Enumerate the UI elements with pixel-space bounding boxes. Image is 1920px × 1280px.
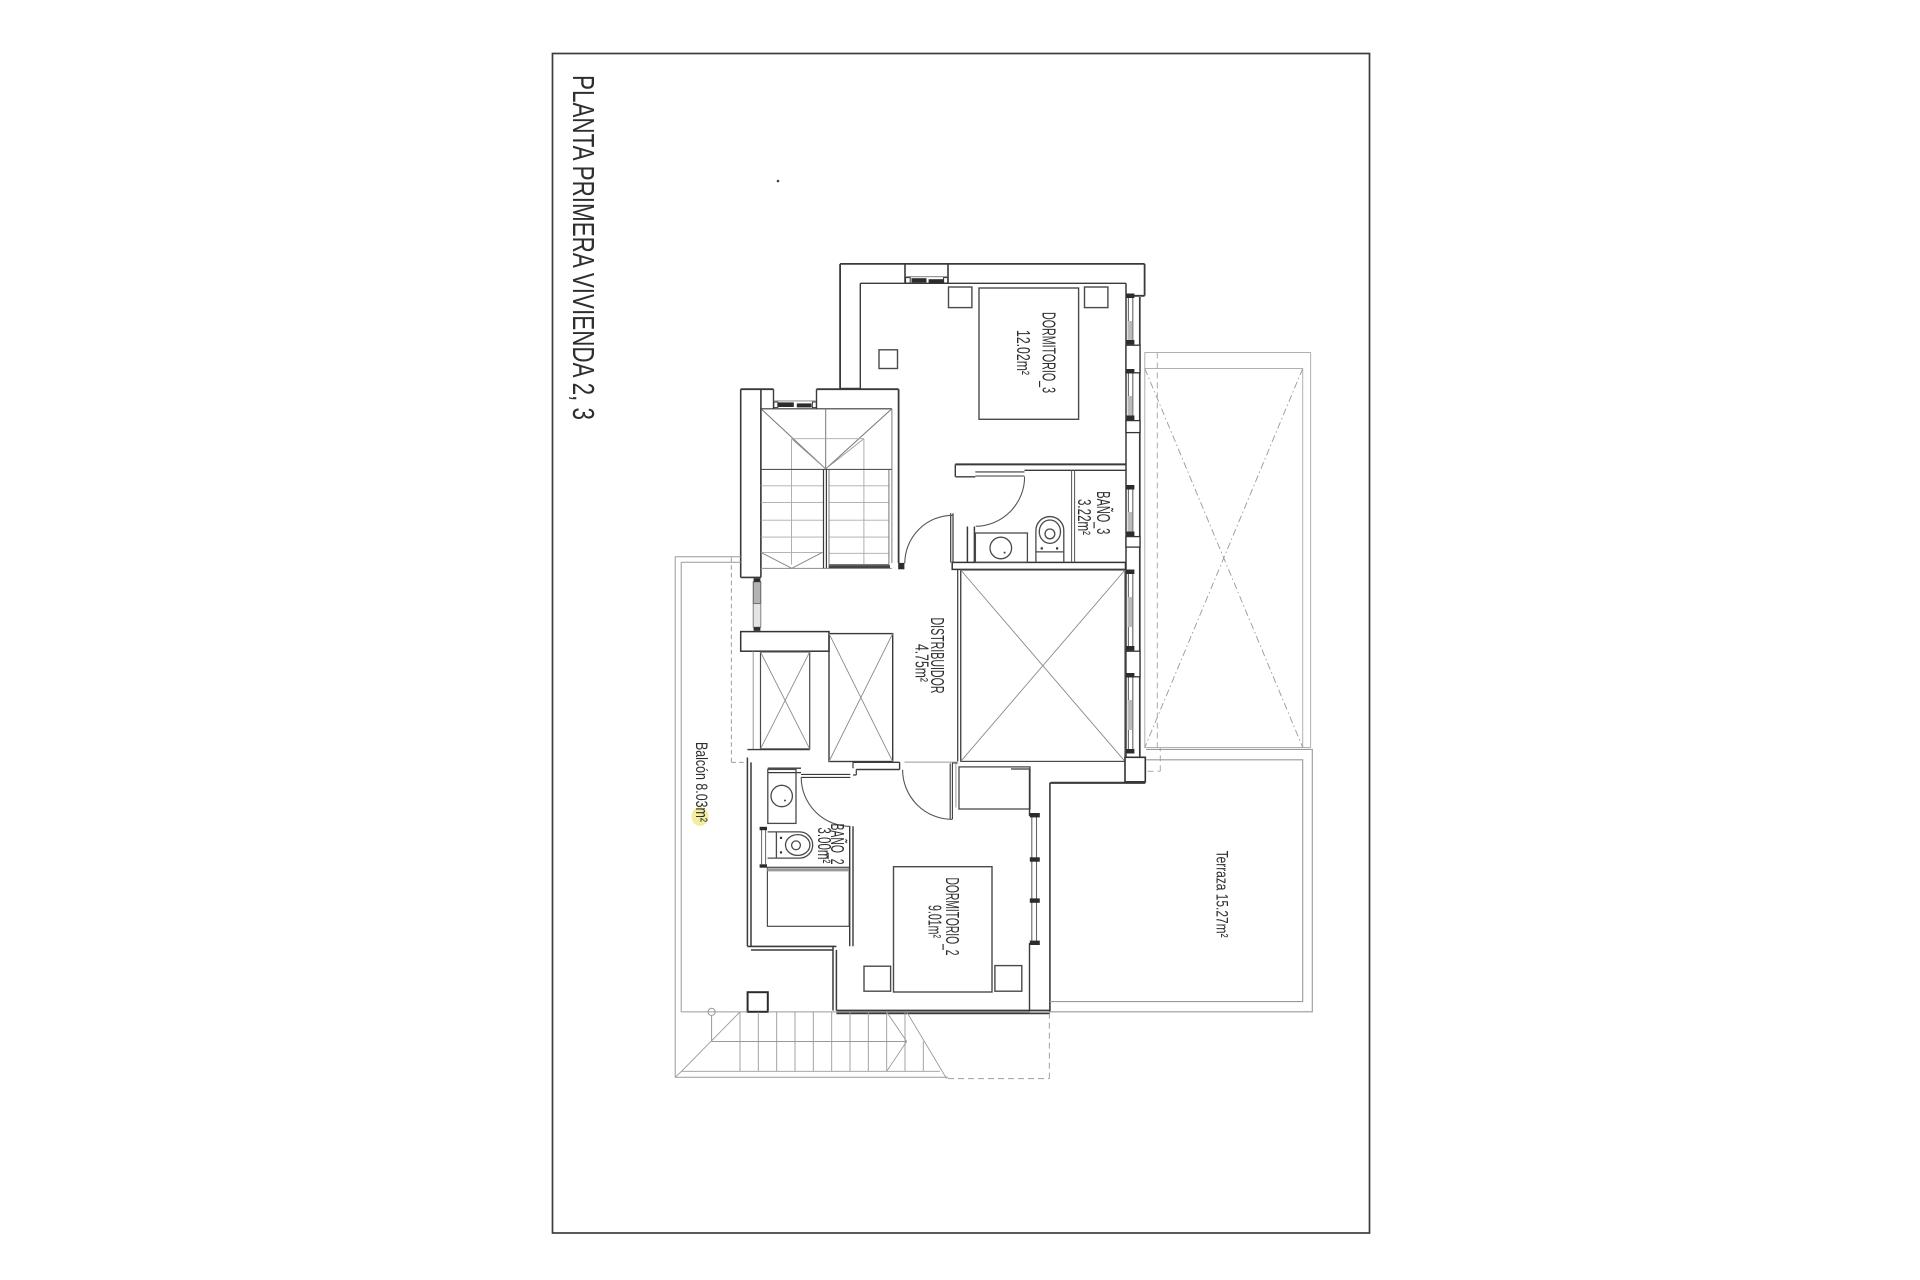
svg-text:3.22m²: 3.22m²	[1074, 499, 1094, 535]
svg-text:PLANTA PRIMERA VIVIENDA 2, 3: PLANTA PRIMERA VIVIENDA 2, 3	[566, 75, 601, 420]
svg-text:12.02m²: 12.02m²	[1013, 330, 1033, 375]
svg-text:BAÑO_3: BAÑO_3	[1092, 491, 1114, 534]
svg-text:4.75m²: 4.75m²	[911, 644, 931, 682]
svg-text:Balcón 8.03m²: Balcón 8.03m²	[692, 742, 710, 822]
svg-text:DORMITORIO_3: DORMITORIO_3	[1038, 312, 1059, 393]
svg-text:3.00m²: 3.00m²	[814, 827, 834, 863]
svg-text:9.01m²: 9.01m²	[925, 905, 945, 938]
svg-text:Terraza 15.27m²: Terraza 15.27m²	[1213, 851, 1232, 938]
